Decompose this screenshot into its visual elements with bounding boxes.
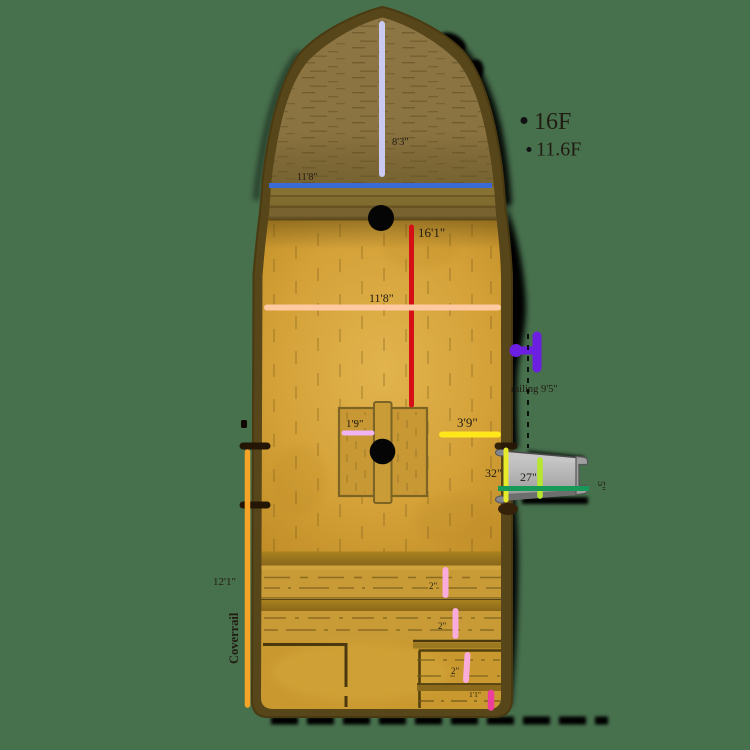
svg-text:Coverrail: Coverrail xyxy=(227,612,241,664)
svg-text:8'3": 8'3" xyxy=(392,137,409,148)
svg-text:11.6F: 11.6F xyxy=(536,139,581,161)
svg-text:2": 2" xyxy=(429,581,438,591)
svg-text:3'9": 3'9" xyxy=(457,415,478,430)
svg-text:2": 2" xyxy=(438,621,447,631)
svg-text:1'9": 1'9" xyxy=(346,418,363,430)
svg-text:16'1": 16'1" xyxy=(418,225,445,240)
svg-text:1'1": 1'1" xyxy=(469,690,481,699)
svg-text:12'1": 12'1" xyxy=(213,576,236,588)
svg-text:5": 5" xyxy=(595,481,606,491)
svg-text:32": 32" xyxy=(485,466,502,480)
svg-text:railing 9'5": railing 9'5" xyxy=(511,384,558,395)
svg-text:2": 2" xyxy=(451,666,460,676)
svg-text:11'8": 11'8" xyxy=(297,172,318,183)
svg-text:16F: 16F xyxy=(534,109,571,135)
svg-text:11'8": 11'8" xyxy=(369,291,394,305)
svg-text:27": 27" xyxy=(520,470,537,484)
